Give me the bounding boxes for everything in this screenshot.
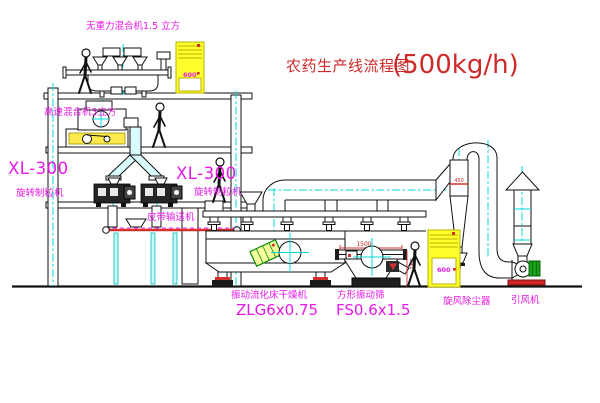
granulator-left: [94, 178, 135, 207]
control-cabinet-bottom: 600: [428, 230, 460, 287]
floor-slab-middle: [46, 147, 252, 153]
label-gravity-mixer: 无重力混合机1.5 立方: [86, 20, 180, 32]
exhaust-duct: [263, 164, 450, 211]
label-sieve-model: FS0.6x1.5: [336, 301, 410, 319]
indicator-dot: [452, 232, 455, 235]
label-granulator-right-name: 旋转制粒机: [194, 186, 242, 198]
induced-draft-fan: [508, 261, 545, 285]
dryer-legs: [212, 272, 331, 286]
control-cabinet-top: 600: [176, 42, 204, 93]
label-granulator-left-name: 旋转制粒机: [16, 187, 64, 199]
cabinet-top-display: 600: [183, 71, 197, 79]
floor-slab-top: [44, 93, 252, 99]
granulator-down-duct: [108, 206, 117, 227]
label-belt-conveyor: 皮带输送机: [147, 211, 195, 223]
label-fan: 引风机: [511, 294, 540, 306]
label-high-speed-mixer: 高速混合机3立方: [44, 106, 117, 118]
indicator-dot: [197, 72, 200, 75]
label-granulator-left-model: XL-300: [8, 159, 69, 178]
label-granulator-right-model: XL-300: [176, 164, 237, 183]
label-dryer-model: ZLG6x0.75: [236, 301, 318, 319]
stack-rain-cap: [506, 172, 539, 190]
label-dryer-name: 振动流化床干燥机: [231, 289, 308, 301]
cyclone-inlet-reducer: [436, 164, 450, 200]
label-sieve-name: 方形振动筛: [337, 289, 385, 301]
person-figure: [408, 242, 420, 286]
vibrating-sieve: 1500 341: [335, 238, 415, 287]
fan-base: [508, 280, 545, 285]
person-figure: [153, 103, 165, 147]
indicator-dot: [197, 44, 200, 47]
cyclone-dimension: 450: [454, 178, 464, 184]
indicator-dot: [453, 268, 456, 271]
cabinet-bottom-display: 600: [437, 266, 451, 274]
label-cyclone: 旋风除尘器: [443, 295, 491, 307]
page-title-capacity: (500kg/h): [392, 50, 519, 80]
fan-motor: [529, 261, 540, 276]
flow-diagram-canvas: 600: [0, 0, 600, 403]
